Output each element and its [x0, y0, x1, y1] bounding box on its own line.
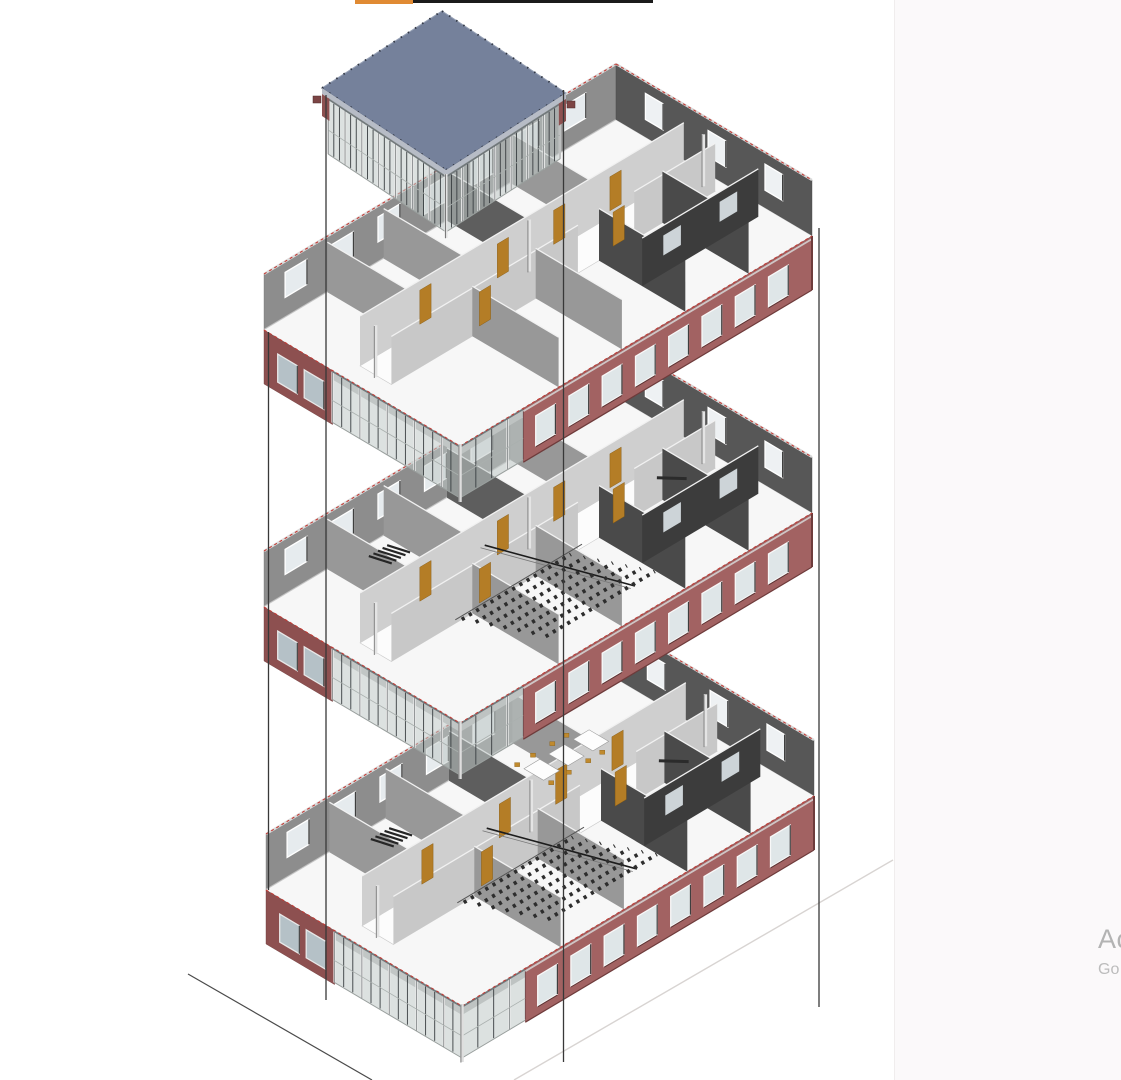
top-orange-bar: [355, 0, 413, 4]
canvas-right-panel: [894, 0, 1121, 1080]
watermark-line2: Go: [1098, 962, 1121, 978]
top-black-bar: [413, 0, 653, 3]
watermark-line1: Ac: [1098, 926, 1121, 953]
desktop-screenshot: { "app": { "description": "BIM exploded …: [0, 0, 1121, 1080]
activate-windows-watermark: Ac Go: [1098, 926, 1121, 978]
